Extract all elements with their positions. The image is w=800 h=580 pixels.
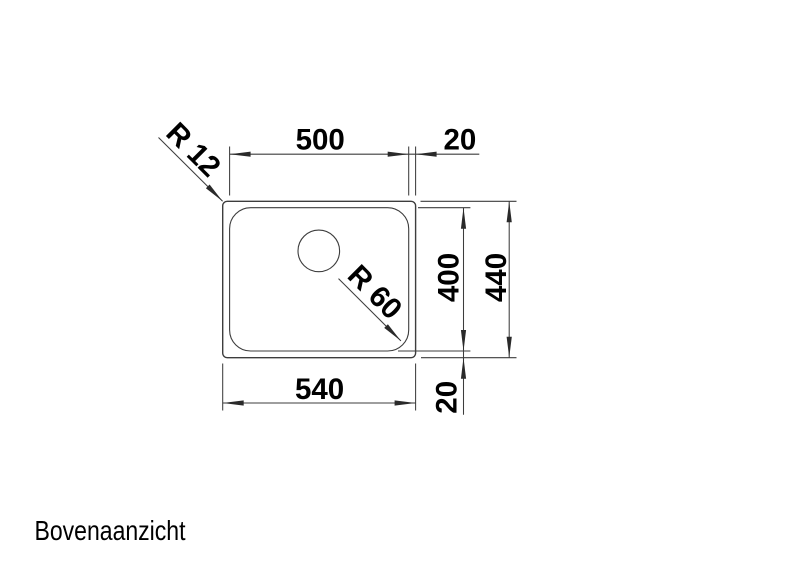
svg-text:20: 20: [443, 124, 476, 157]
svg-text:20: 20: [430, 381, 463, 414]
svg-text:R 12: R 12: [160, 116, 227, 183]
svg-text:R 60: R 60: [341, 259, 408, 326]
svg-text:440: 440: [480, 253, 513, 302]
svg-text:540: 540: [295, 373, 344, 406]
svg-text:Bovenaanzicht: Bovenaanzicht: [35, 515, 186, 546]
svg-text:400: 400: [433, 253, 466, 302]
svg-text:500: 500: [296, 123, 345, 156]
